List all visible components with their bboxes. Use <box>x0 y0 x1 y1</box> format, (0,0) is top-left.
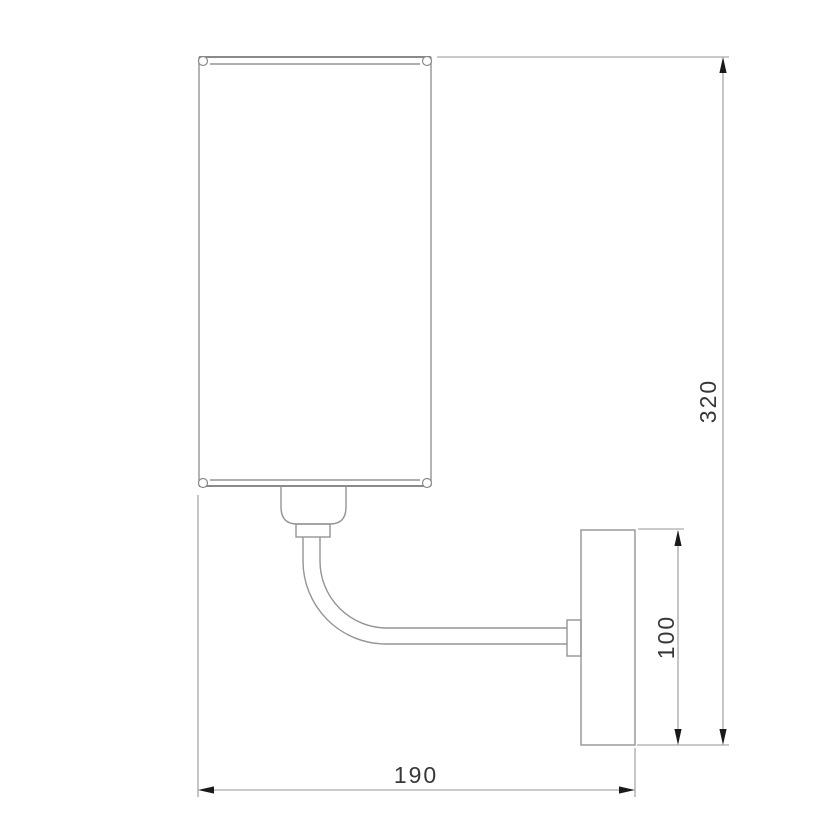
arrowhead-down-icon <box>674 729 681 745</box>
holder-neck <box>296 524 330 537</box>
wall-mount-plate <box>581 530 635 745</box>
dimension-overall-depth: 190 <box>198 495 635 797</box>
wall-plate-body <box>581 530 635 745</box>
arrowhead-up-icon <box>674 530 681 546</box>
lamp-shade <box>199 57 432 488</box>
arrowhead-up-icon <box>719 57 726 73</box>
arm-inner-line <box>320 537 567 628</box>
dimension-label-overall-depth: 190 <box>394 762 438 788</box>
rim-pin-bottom-left <box>199 479 208 488</box>
holder-body <box>281 486 346 524</box>
arrowhead-right-icon <box>619 786 635 793</box>
rim-pin-bottom-right <box>423 479 432 488</box>
rim-pin-top-right <box>423 57 432 66</box>
drawing-page: 320 100 190 <box>0 0 816 816</box>
arrowhead-down-icon <box>719 729 726 745</box>
dimension-label-plate-height: 100 <box>653 615 679 659</box>
lamp-holder <box>281 486 346 537</box>
rim-pin-top-left <box>199 57 208 66</box>
dimension-plate-height: 100 <box>638 529 684 745</box>
arrowhead-left-icon <box>198 786 214 793</box>
dimension-overall-height: 320 <box>437 57 729 745</box>
technical-drawing: 320 100 190 <box>0 0 816 816</box>
curved-arm <box>303 537 581 656</box>
dimension-label-overall-height: 320 <box>695 379 721 423</box>
arm-wall-joint <box>567 620 581 656</box>
